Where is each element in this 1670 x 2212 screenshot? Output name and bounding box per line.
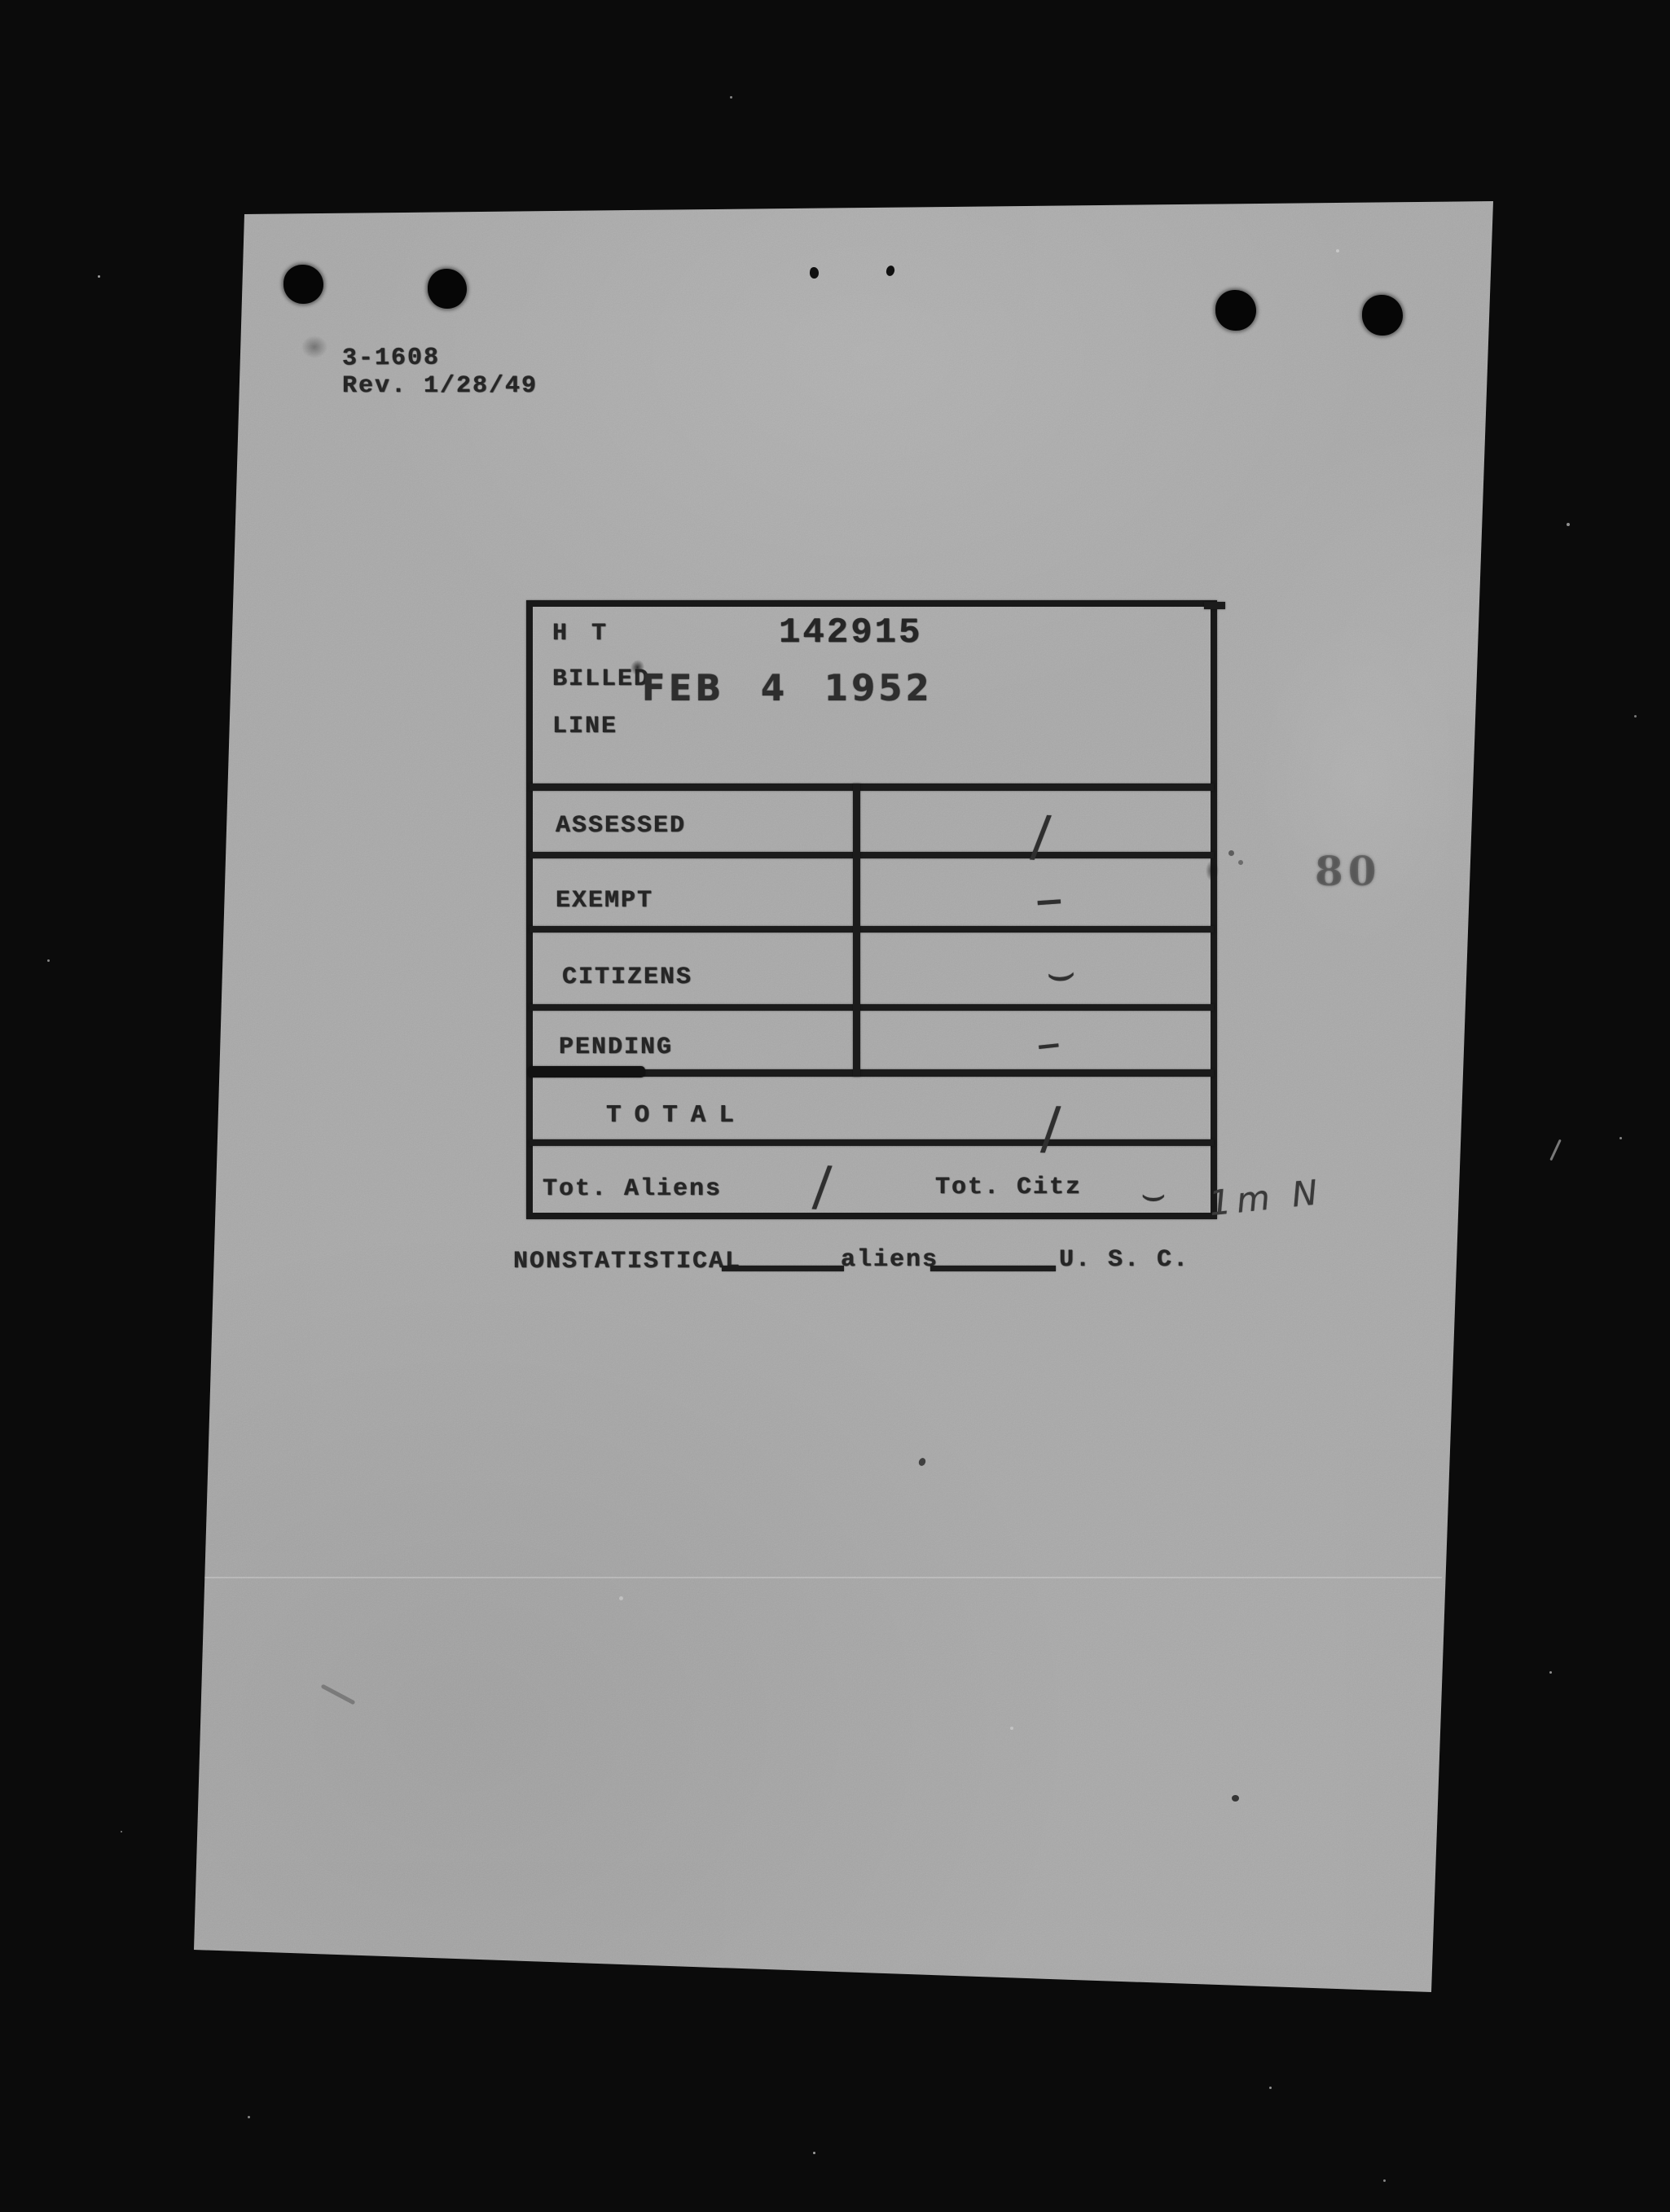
paper-shade	[1255, 611, 1466, 953]
ht-label: H T	[552, 621, 611, 647]
tot-citz-mark: ⌣	[1140, 1171, 1167, 1218]
total-mark: /	[1040, 1095, 1061, 1162]
punch-hole	[283, 265, 323, 304]
table-rule	[530, 926, 1214, 933]
tot-aliens-label: Tot. Aliens	[543, 1176, 722, 1202]
table-rule	[530, 1139, 1214, 1146]
table-rule	[530, 1004, 1214, 1011]
table-rule-stub	[1204, 602, 1225, 609]
dust-speck	[1549, 1671, 1552, 1674]
dust-speck	[47, 959, 50, 962]
dust-speck	[1567, 523, 1570, 526]
ink-dot	[1238, 860, 1243, 865]
table-rule	[530, 783, 1214, 791]
ink-smudge	[301, 336, 327, 358]
dust-speck	[1383, 2179, 1386, 2182]
dust-speck	[1634, 715, 1637, 718]
dust-speck	[121, 1831, 122, 1832]
dust-speck	[98, 275, 100, 278]
table-rule	[530, 852, 1214, 858]
ink-dot	[1232, 1795, 1239, 1802]
dust-speck	[730, 96, 732, 99]
page-number-stamp: 80	[1315, 847, 1382, 895]
nonstatistical-label: NONSTATISTICAL	[513, 1249, 741, 1275]
ink-dot	[885, 265, 895, 277]
ink-dot	[1228, 850, 1234, 856]
row-mark-exempt: –	[1032, 864, 1066, 933]
form-number: 3-1608	[342, 345, 440, 371]
ink-dot	[917, 1457, 926, 1467]
margin-note-handwriting: 1m N	[1207, 1172, 1325, 1223]
form-revision: Rev. 1/28/49	[342, 373, 538, 399]
line-label: LINE	[552, 713, 617, 740]
dust-speck	[1269, 2087, 1272, 2089]
dust-speck	[813, 2152, 815, 2154]
row-label-pending: PENDING	[559, 1034, 673, 1060]
row-label-assessed: ASSESSED	[556, 813, 686, 839]
aliens-label: aliens	[841, 1247, 938, 1273]
row-label-exempt: EXEMPT	[556, 888, 653, 914]
ink-dot	[810, 267, 819, 279]
tot-citz-label: Tot. Citz	[935, 1174, 1082, 1200]
total-label: TOTAL	[606, 1101, 747, 1130]
scratch-mark	[204, 1577, 1442, 1578]
punch-hole	[1215, 290, 1256, 331]
tot-aliens-mark: /	[811, 1154, 833, 1218]
paper-fleck	[1336, 249, 1339, 252]
scanned-document: 3-1608 Rev. 1/28/49 H T 142915 BILLED FE…	[0, 0, 1670, 2212]
row-label-citizens: CITIZENS	[562, 964, 692, 990]
paper-sheet: 3-1608 Rev. 1/28/49 H T 142915 BILLED FE…	[0, 0, 1670, 2212]
row-mark-citizens: ⌣	[1044, 946, 1078, 1001]
pencil-streak	[321, 1683, 356, 1705]
table-divider	[853, 783, 860, 1077]
punch-hole	[1362, 295, 1403, 336]
paper-fleck	[619, 1596, 623, 1600]
punch-hole	[428, 269, 467, 309]
fill-in-rule	[722, 1266, 844, 1271]
dust-speck	[248, 2116, 250, 2118]
dust-speck	[1619, 1137, 1622, 1139]
billed-label: BILLED	[552, 666, 650, 692]
date-stamp: FEB 4 1952	[642, 667, 933, 709]
fill-in-rule	[930, 1266, 1056, 1271]
usc-label: U. S. C.	[1059, 1247, 1189, 1273]
paper-fleck	[1010, 1727, 1013, 1730]
ht-number: 142915	[779, 612, 922, 653]
scratch-mark	[1549, 1139, 1562, 1161]
ink-smear	[528, 1066, 645, 1077]
